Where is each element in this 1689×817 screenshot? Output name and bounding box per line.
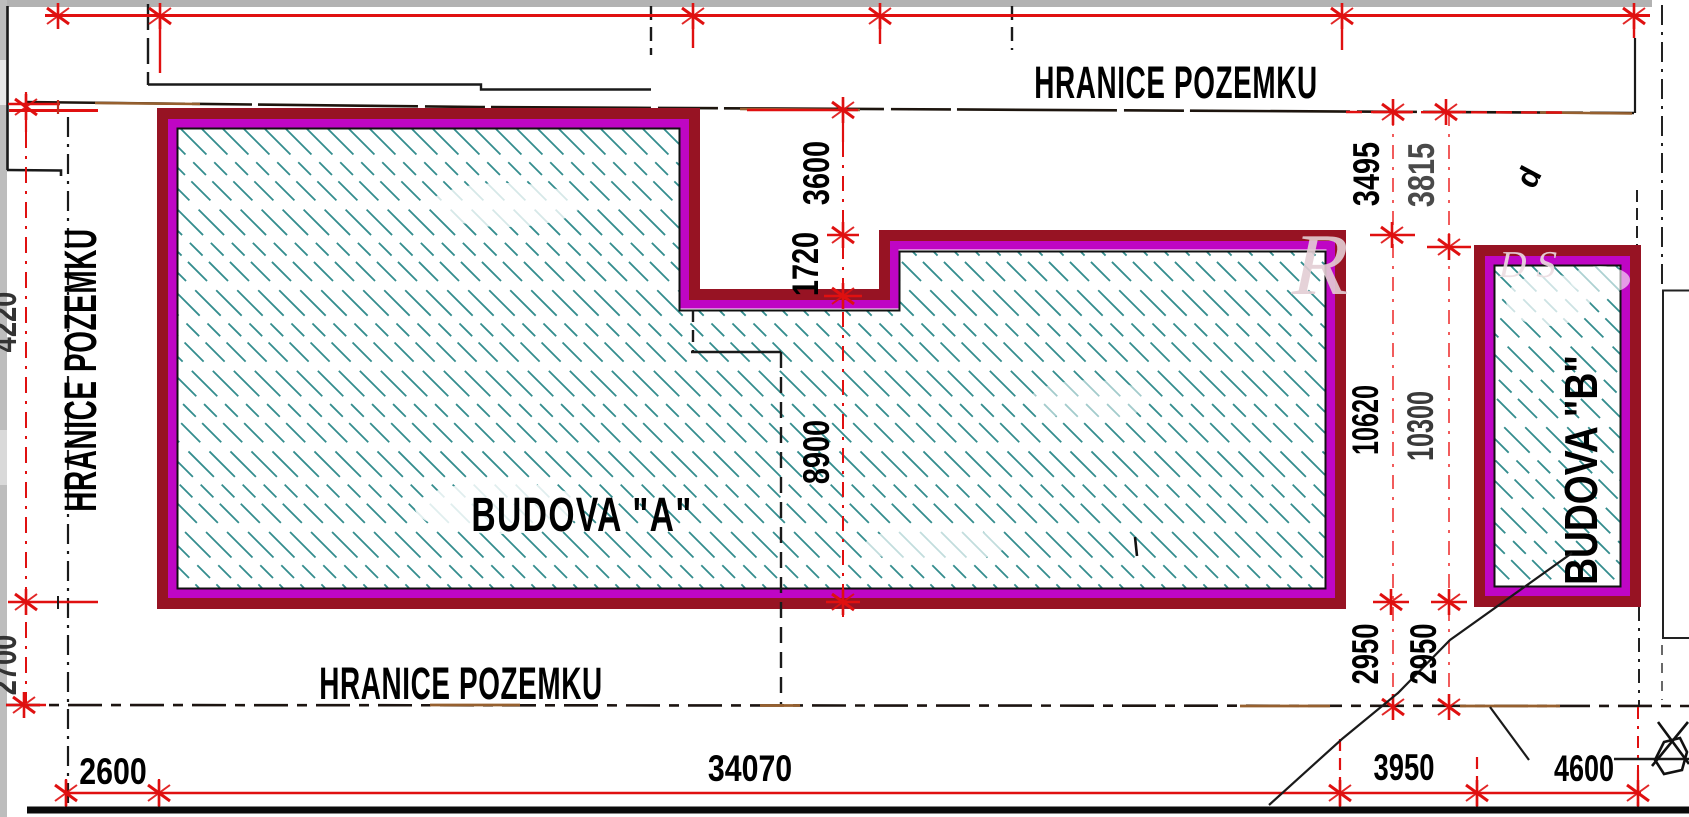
svg-text:BUDOVA "A": BUDOVA "A" (471, 487, 692, 541)
svg-text:3600: 3600 (797, 141, 838, 205)
svg-text:4600: 4600 (1554, 748, 1614, 789)
svg-text:HRANICE POZEMKU: HRANICE POZEMKU (55, 228, 105, 512)
svg-text:BUDOVA "B": BUDOVA "B" (1555, 355, 1607, 585)
svg-text:3495: 3495 (1347, 142, 1388, 206)
svg-text:2700: 2700 (0, 635, 24, 696)
svg-text:2600: 2600 (79, 751, 146, 793)
svg-text:2950: 2950 (1403, 624, 1444, 685)
svg-text:1720: 1720 (786, 232, 827, 296)
svg-text:2950: 2950 (1345, 624, 1386, 685)
svg-text:3950: 3950 (1374, 747, 1435, 788)
svg-text:34070: 34070 (708, 748, 792, 790)
svg-text:3815: 3815 (1402, 143, 1443, 207)
svg-text:HRANICE POZEMKU: HRANICE POZEMKU (319, 658, 603, 708)
svg-text:10300: 10300 (1399, 391, 1441, 461)
svg-text:10620: 10620 (1344, 385, 1386, 455)
svg-text:HRANICE POZEMKU: HRANICE POZEMKU (1034, 57, 1318, 107)
svg-text:8900: 8900 (797, 420, 838, 484)
svg-text:D S: D S (1495, 244, 1562, 286)
svg-text:4220: 4220 (0, 292, 24, 353)
